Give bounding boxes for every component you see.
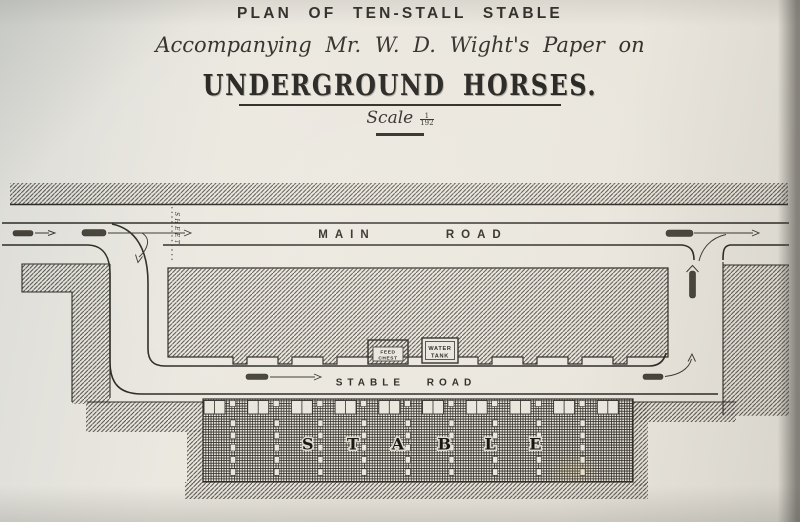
central-pillar [168,268,668,364]
stall-partition-dot [274,469,279,476]
stall-partition-dot [405,457,410,464]
air-current-feather [690,271,696,298]
stall-partition-dot [405,420,410,427]
stall-partition-dot [536,420,541,427]
stall-partition-dot [274,457,279,464]
stall-post [317,401,323,407]
stall-partition-dot [362,420,367,427]
stall-partition-dot [449,457,454,464]
main-title: UNDERGROUND HORSES. [72,68,728,102]
stall-partition-dot [231,457,236,464]
stall-partition-dot [362,457,367,464]
stall-partition-dot [536,457,541,464]
air-arrow-stable-road-east-up [643,354,696,380]
stall-post [579,401,585,407]
scale-denominator: 192 [420,120,433,126]
plan-title: PLAN OF TEN-STALL STABLE [0,5,800,23]
stall-post [492,401,498,407]
air-arrow-stable-road-west [246,374,321,380]
stall-post [361,401,367,407]
sheet-label: SHEET [173,212,180,246]
air-curve-from-vertical-road [699,235,726,262]
stall-partition-dot [318,469,323,476]
scale-bar [376,133,424,136]
water-tank-label-1: WATER [428,346,451,352]
title-underline [239,104,561,106]
main-road-south-edge-east [723,245,789,260]
stall-partition-dot [536,469,541,476]
stall-post [448,401,454,407]
stall-partition-dot [493,420,498,427]
air-arrow-main-west-1 [13,231,55,237]
stall-partition-dot [580,469,585,476]
water-tank-label-2: TANK [431,353,449,359]
bottom-rock-strip [185,482,648,499]
water-tank: WATER TANK [422,338,458,363]
stable-road-label: STABLE ROAD [336,378,476,389]
feed-chest-label-1: FEED [380,350,395,356]
stall-partition-dot [362,469,367,476]
stall-partition-dot [449,469,454,476]
stall-partition-dot [580,457,585,464]
stall-partition-dot [231,420,236,427]
stall-partition-dot [274,444,279,451]
stall-post [273,401,279,407]
air-current-feather [643,374,663,380]
stall-partition-dot [231,469,236,476]
stall-partition-dot [231,432,236,439]
stall-post [230,401,236,407]
main-road-south-edge-middle [163,245,694,260]
air-current-feather [246,374,268,380]
stall-partition-dot [231,444,236,451]
top-rock-band [10,183,788,204]
stable-label: STABLE [302,435,575,454]
scale-word: Scale [366,108,413,128]
plan-subtitle: Accompanying Mr. W. D. Wight's Paper on [0,33,800,57]
stable-block: STABLE [203,399,633,482]
air-current-feather [666,230,693,237]
air-current-feather [13,231,33,237]
stall-partition-dot [493,457,498,464]
scanned-plan-page: PLAN OF TEN-STALL STABLE Accompanying Mr… [0,0,800,522]
scale-fraction: 1192 [420,113,433,126]
feed-chest-label-2: CHEST [378,356,397,362]
stall-partition-dot [405,469,410,476]
stall-post [535,401,541,407]
stall-partition-dot [318,420,323,427]
stall-partition-dot [580,444,585,451]
stall-partition-dot [274,420,279,427]
scale-row: Scale1192 [0,108,800,128]
main-road-label: MAIN ROAD [318,229,507,241]
stall-partition-dot [449,420,454,427]
stall-partition-dot [493,469,498,476]
air-arrow-vertical-road-up [687,266,699,299]
air-current-feather [82,230,106,237]
stall-partition-dot [318,457,323,464]
stall-partition-dot [274,432,279,439]
stall-partition-dot [580,432,585,439]
under-road-band-right [633,402,736,422]
feed-chest: FEED CHEST [368,340,408,364]
stall-post [404,401,410,407]
stall-partition-dot [580,420,585,427]
